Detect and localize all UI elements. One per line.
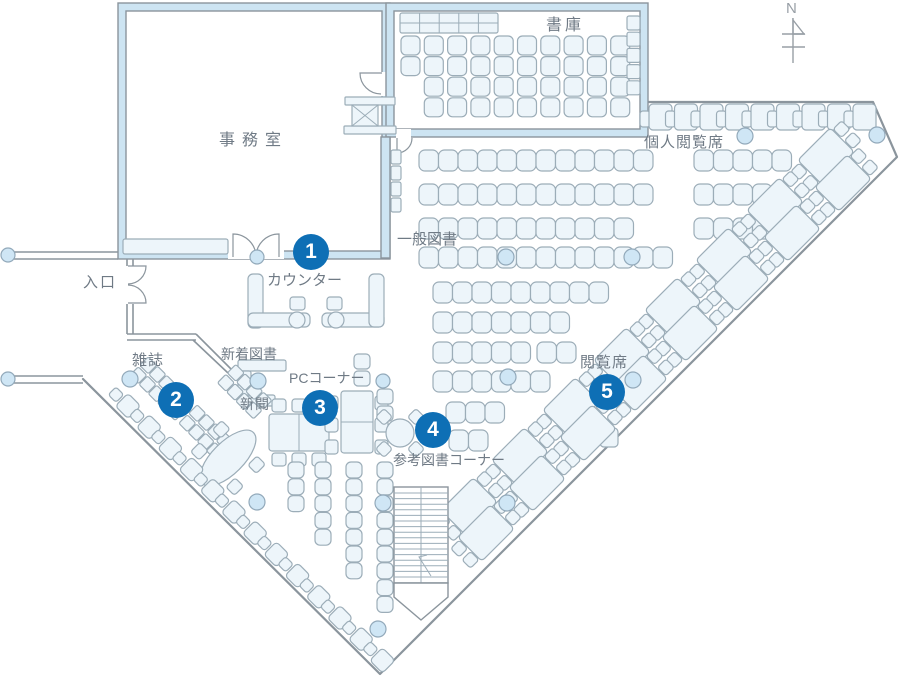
label-general-books: 一般図書 [397,228,457,249]
label-individual-seats: 個人閲覧席 [644,131,724,152]
label-counter: カウンター [267,269,342,290]
label-reference-corner: 参考図書コーナー [393,450,505,470]
label-magazines: 雑誌 [132,349,164,370]
stairs [394,487,448,620]
library-floor-plan: 書庫 事務室 個人閲覧席 一般図書 入口 カウンター 雑誌 新着図書 新聞 PC… [0,0,920,679]
label-entrance: 入口 [83,271,117,292]
north-arrow-icon [782,18,805,63]
marker-2[interactable]: 2 [158,382,194,418]
label-new-arrivals: 新着図書 [221,344,277,364]
floorplan-drawing [0,0,920,679]
label-office: 事務室 [219,126,288,150]
label-stacks: 書庫 [546,11,584,35]
label-newspaper: 新聞 [240,394,270,414]
marker-3[interactable]: 3 [302,390,338,426]
label-reading-seats: 閲覧席 [580,351,628,372]
marker-4[interactable]: 4 [415,412,451,448]
north-label: N [786,0,797,17]
marker-5[interactable]: 5 [589,374,625,410]
stacks-room [386,3,648,153]
marker-1[interactable]: 1 [293,234,329,270]
label-pc-corner: PCコーナー [289,368,364,388]
